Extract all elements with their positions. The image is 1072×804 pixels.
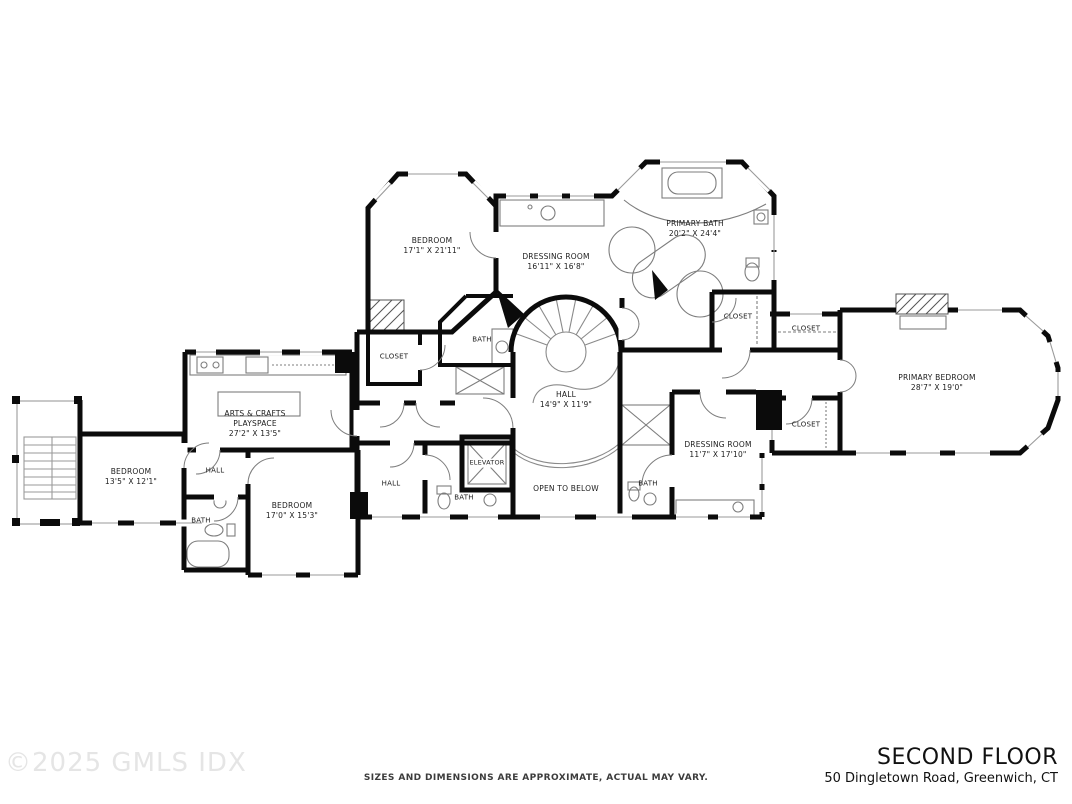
room-name: ELEVATOR — [469, 459, 504, 468]
room-name: BATH — [454, 493, 473, 502]
room-label-bath-upper: BATH — [472, 335, 491, 344]
room-name: DRESSING ROOM — [522, 252, 589, 262]
room-label-closet-bath: CLOSET — [724, 312, 752, 321]
room-label-primary-bedroom: PRIMARY BEDROOM 28'7" X 19'0" — [898, 373, 975, 393]
room-dims: 20'2" X 24'4" — [666, 229, 724, 239]
room-name: OPEN TO BELOW — [533, 484, 599, 494]
room-name-line2: PLAYSPACE — [224, 419, 285, 429]
room-dims: 27'2" X 13'5" — [224, 429, 285, 439]
room-name: BEDROOM — [403, 236, 460, 246]
window-lines — [92, 162, 1058, 575]
room-dims: 17'1" X 21'11" — [403, 246, 460, 256]
dimensions-disclaimer: SIZES AND DIMENSIONS ARE APPROXIMATE, AC… — [364, 773, 708, 783]
room-name: DRESSING ROOM — [684, 440, 751, 450]
room-name: BATH — [638, 479, 657, 488]
room-label-elevator: ELEVATOR — [468, 459, 505, 468]
room-label-bath-right: BATH — [638, 479, 657, 488]
title-block: SECOND FLOOR 50 Dingletown Road, Greenwi… — [824, 745, 1058, 786]
room-name: CLOSET — [724, 312, 752, 321]
room-name: CLOSET — [792, 324, 820, 333]
room-label-bedroom-left: BEDROOM 13'5" X 12'1" — [105, 467, 157, 487]
room-label-arts-crafts: ARTS & CRAFTS PLAYSPACE 27'2" X 13'5" — [224, 409, 285, 439]
room-label-bath-center: BATH — [454, 493, 473, 502]
room-label-hall-left: HALL — [206, 466, 225, 475]
room-name: HALL — [540, 390, 592, 400]
property-address: 50 Dingletown Road, Greenwich, CT — [824, 771, 1058, 786]
room-label-hall-center: HALL — [382, 479, 401, 488]
door-arcs — [184, 232, 856, 521]
room-label-dressing-room-main: DRESSING ROOM 16'11" X 16'8" — [522, 252, 589, 272]
room-name: ARTS & CRAFTS — [224, 409, 285, 419]
room-name: PRIMARY BEDROOM — [898, 373, 975, 383]
room-name: CLOSET — [792, 420, 820, 429]
room-dims: 16'11" X 16'8" — [522, 262, 589, 272]
room-label-closet-center: CLOSET — [380, 352, 408, 361]
room-label-bedroom-top-left: BEDROOM 17'1" X 21'11" — [403, 236, 460, 256]
walls-layer — [80, 162, 1058, 575]
room-name: PRIMARY BATH — [666, 219, 724, 229]
room-dims: 11'7" X 17'10" — [684, 450, 751, 460]
room-dims: 28'7" X 19'0" — [898, 383, 975, 393]
room-label-primary-bath: PRIMARY BATH 20'2" X 24'4" — [666, 219, 724, 239]
room-dims: 14'9" X 11'9" — [540, 400, 592, 410]
room-label-bath-left: BATH — [191, 516, 210, 525]
fixtures-layer — [17, 168, 946, 567]
room-name: BEDROOM — [266, 501, 318, 511]
room-name: BEDROOM — [105, 467, 157, 477]
room-label-dressing-room-2: DRESSING ROOM 11'7" X 17'10" — [684, 440, 751, 460]
room-label-bedroom-bottom: BEDROOM 17'0" X 15'3" — [266, 501, 318, 521]
room-dims: 13'5" X 12'1" — [105, 477, 157, 487]
room-name: BATH — [472, 335, 491, 344]
room-dims: 17'0" X 15'3" — [266, 511, 318, 521]
room-label-closet-corridor: CLOSET — [792, 324, 820, 333]
floor-title: SECOND FLOOR — [824, 745, 1058, 770]
floor-plan-page: BEDROOM 17'1" X 21'11" DRESSING ROOM 16'… — [0, 0, 1072, 804]
wall-openings — [92, 162, 1058, 575]
room-label-hall-main: HALL 14'9" X 11'9" — [540, 390, 592, 410]
room-name: HALL — [206, 466, 225, 475]
room-label-open-to-below: OPEN TO BELOW — [533, 484, 599, 494]
copyright-watermark: ©2025 GMLS IDX — [5, 748, 247, 778]
floor-plan-drawing — [0, 0, 1072, 804]
room-name: BATH — [191, 516, 210, 525]
room-label-closet-lower: CLOSET — [792, 420, 820, 429]
room-name: HALL — [382, 479, 401, 488]
room-name: CLOSET — [380, 352, 408, 361]
